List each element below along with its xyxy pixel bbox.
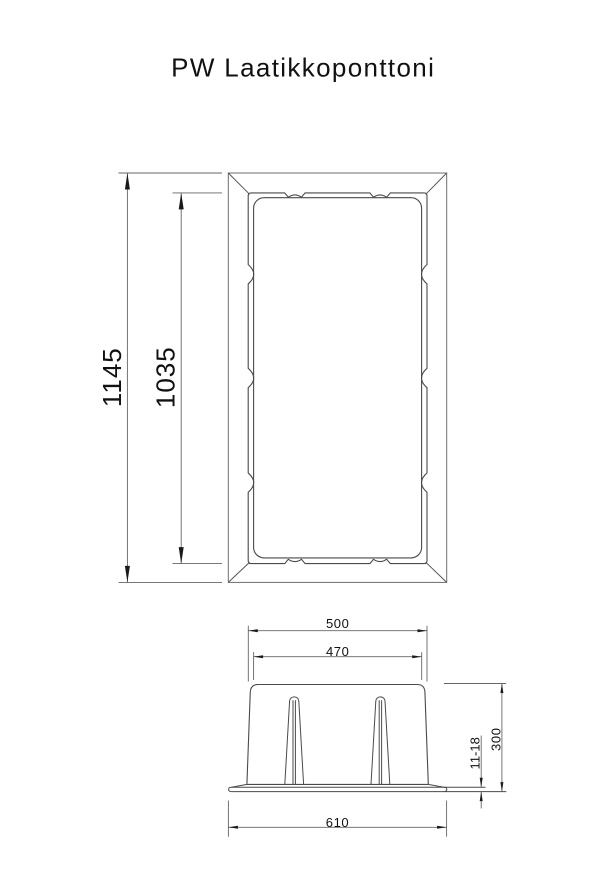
svg-text:PW Laatikkoponttoni: PW Laatikkoponttoni [171, 53, 435, 83]
svg-text:1035: 1035 [151, 346, 181, 408]
svg-text:11-18: 11-18 [468, 737, 483, 769]
svg-text:300: 300 [488, 727, 503, 751]
svg-text:610: 610 [326, 815, 350, 830]
svg-text:470: 470 [326, 644, 350, 659]
svg-text:500: 500 [326, 616, 350, 631]
svg-text:1145: 1145 [97, 347, 127, 407]
